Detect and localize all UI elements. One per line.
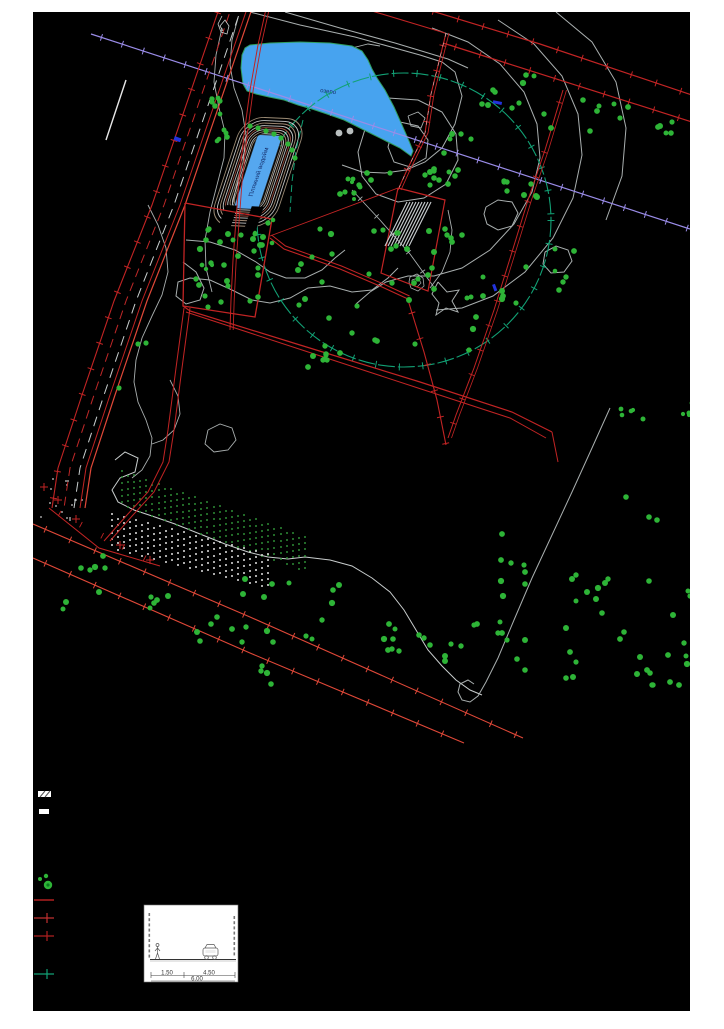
svg-text:4.50: 4.50	[203, 971, 215, 977]
svg-text:6.00: 6.00	[191, 977, 203, 983]
svg-text:1.50: 1.50	[161, 971, 173, 977]
